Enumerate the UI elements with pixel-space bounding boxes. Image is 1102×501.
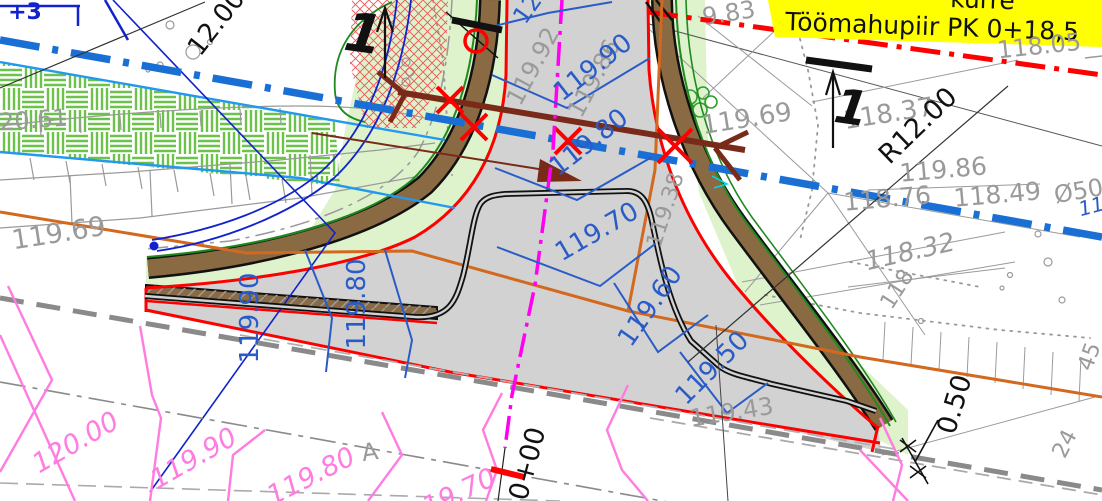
terrain-contour-label: 119.80: [262, 441, 360, 501]
leader-118-05: [1085, 56, 1102, 58]
elevation-label: 20.61: [0, 104, 69, 137]
radius-label: 12.00: [182, 0, 251, 62]
elevation-label: 118.49: [952, 176, 1042, 213]
plan-drawing: kurre Töömahupiir PK 0+18,5 119.69119.69…: [0, 0, 1102, 501]
elevation-label: 118.76: [842, 180, 932, 217]
construction-plan-canvas: kurre Töömahupiir PK 0+18,5 119.69119.69…: [0, 0, 1102, 501]
station-label: 0+00: [503, 424, 552, 501]
blue-line-endpoint: [150, 242, 159, 251]
label-fragment: +3: [8, 0, 42, 25]
terrain-contour-label: 120.00: [27, 406, 124, 480]
elevation-label: 119.69: [10, 211, 108, 256]
dimension-label: 0.50: [931, 371, 978, 438]
terrain-contour-label: 119.70: [402, 462, 501, 501]
boundary-letter: A: [360, 437, 381, 467]
elevation-label: 118.32: [862, 227, 957, 277]
design-contour-label: 119.80: [342, 259, 372, 350]
elevation-label: 9.83: [700, 0, 757, 31]
design-contour-label: 119.90: [235, 273, 265, 364]
elevation-label: 24: [1048, 426, 1083, 462]
elevation-label: 45: [1073, 339, 1102, 374]
